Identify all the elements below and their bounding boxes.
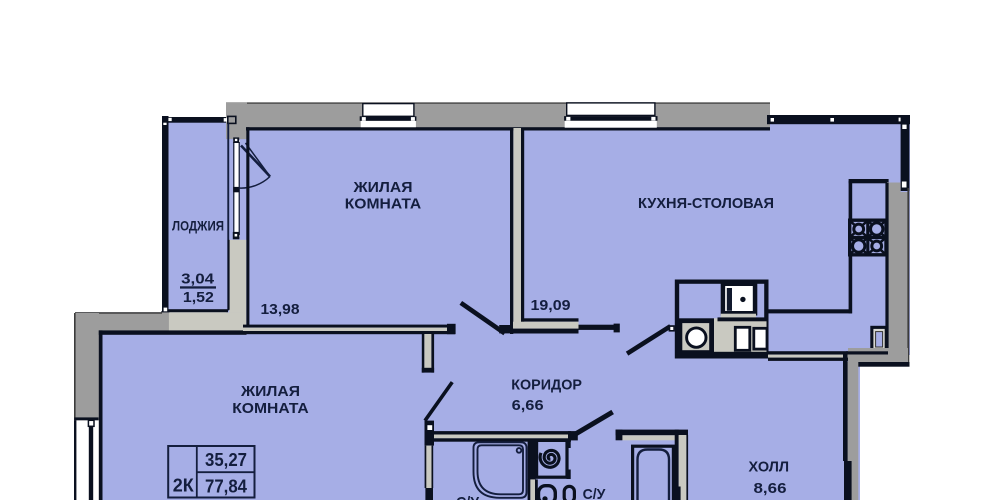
svg-text:КОРИДОР: КОРИДОР [511, 377, 582, 394]
svg-text:2К: 2К [173, 475, 195, 496]
svg-text:ХОЛЛ: ХОЛЛ [749, 460, 790, 476]
svg-text:77,84: 77,84 [205, 475, 248, 496]
svg-text:19,09: 19,09 [531, 297, 571, 314]
svg-text:8,66: 8,66 [754, 480, 787, 497]
svg-text:ЖИЛАЯ: ЖИЛАЯ [240, 384, 300, 400]
svg-text:6,66: 6,66 [512, 397, 544, 414]
svg-text:13,98: 13,98 [261, 301, 300, 318]
svg-text:С/У: С/У [456, 495, 480, 500]
svg-text:35,27: 35,27 [205, 449, 247, 470]
svg-text:ЛОДЖИЯ: ЛОДЖИЯ [172, 218, 224, 233]
svg-text:3,04: 3,04 [181, 270, 215, 287]
svg-text:ЖИЛАЯ: ЖИЛАЯ [352, 180, 412, 196]
svg-text:КОМНАТА: КОМНАТА [345, 196, 422, 212]
svg-text:КОМНАТА: КОМНАТА [232, 401, 309, 417]
svg-text:С/У: С/У [583, 487, 607, 500]
svg-text:1,52: 1,52 [183, 289, 214, 306]
svg-text:КУХНЯ-СТОЛОВАЯ: КУХНЯ-СТОЛОВАЯ [638, 196, 774, 212]
